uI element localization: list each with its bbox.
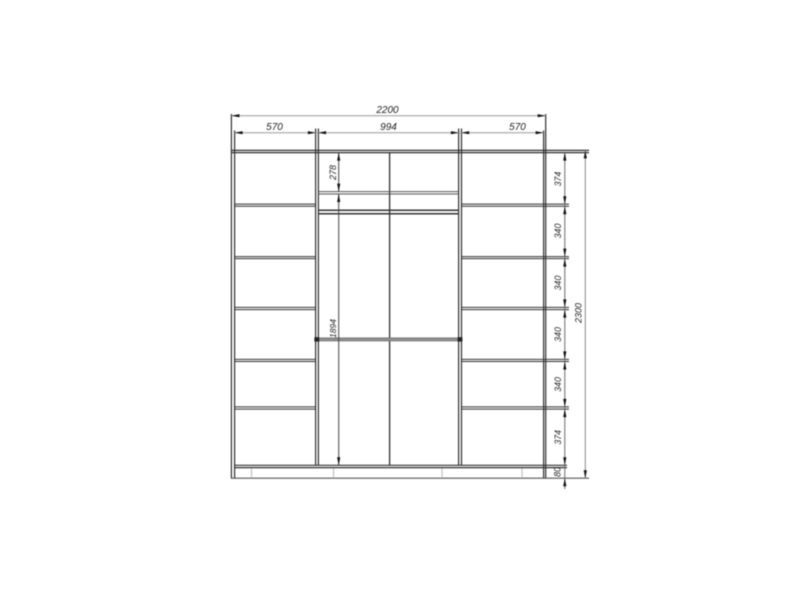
svg-text:278: 278 — [328, 165, 338, 181]
svg-text:374: 374 — [553, 430, 563, 445]
svg-text:374: 374 — [553, 172, 563, 187]
svg-text:340: 340 — [553, 377, 563, 392]
svg-text:994: 994 — [380, 122, 397, 133]
svg-text:340: 340 — [553, 276, 563, 291]
svg-text:1894: 1894 — [328, 319, 338, 338]
svg-text:340: 340 — [553, 327, 563, 342]
svg-text:570: 570 — [266, 122, 283, 133]
svg-text:570: 570 — [509, 122, 526, 133]
svg-text:2300: 2300 — [574, 303, 584, 324]
svg-text:340: 340 — [553, 224, 563, 239]
svg-text:80: 80 — [553, 467, 563, 477]
svg-text:2200: 2200 — [375, 105, 399, 116]
